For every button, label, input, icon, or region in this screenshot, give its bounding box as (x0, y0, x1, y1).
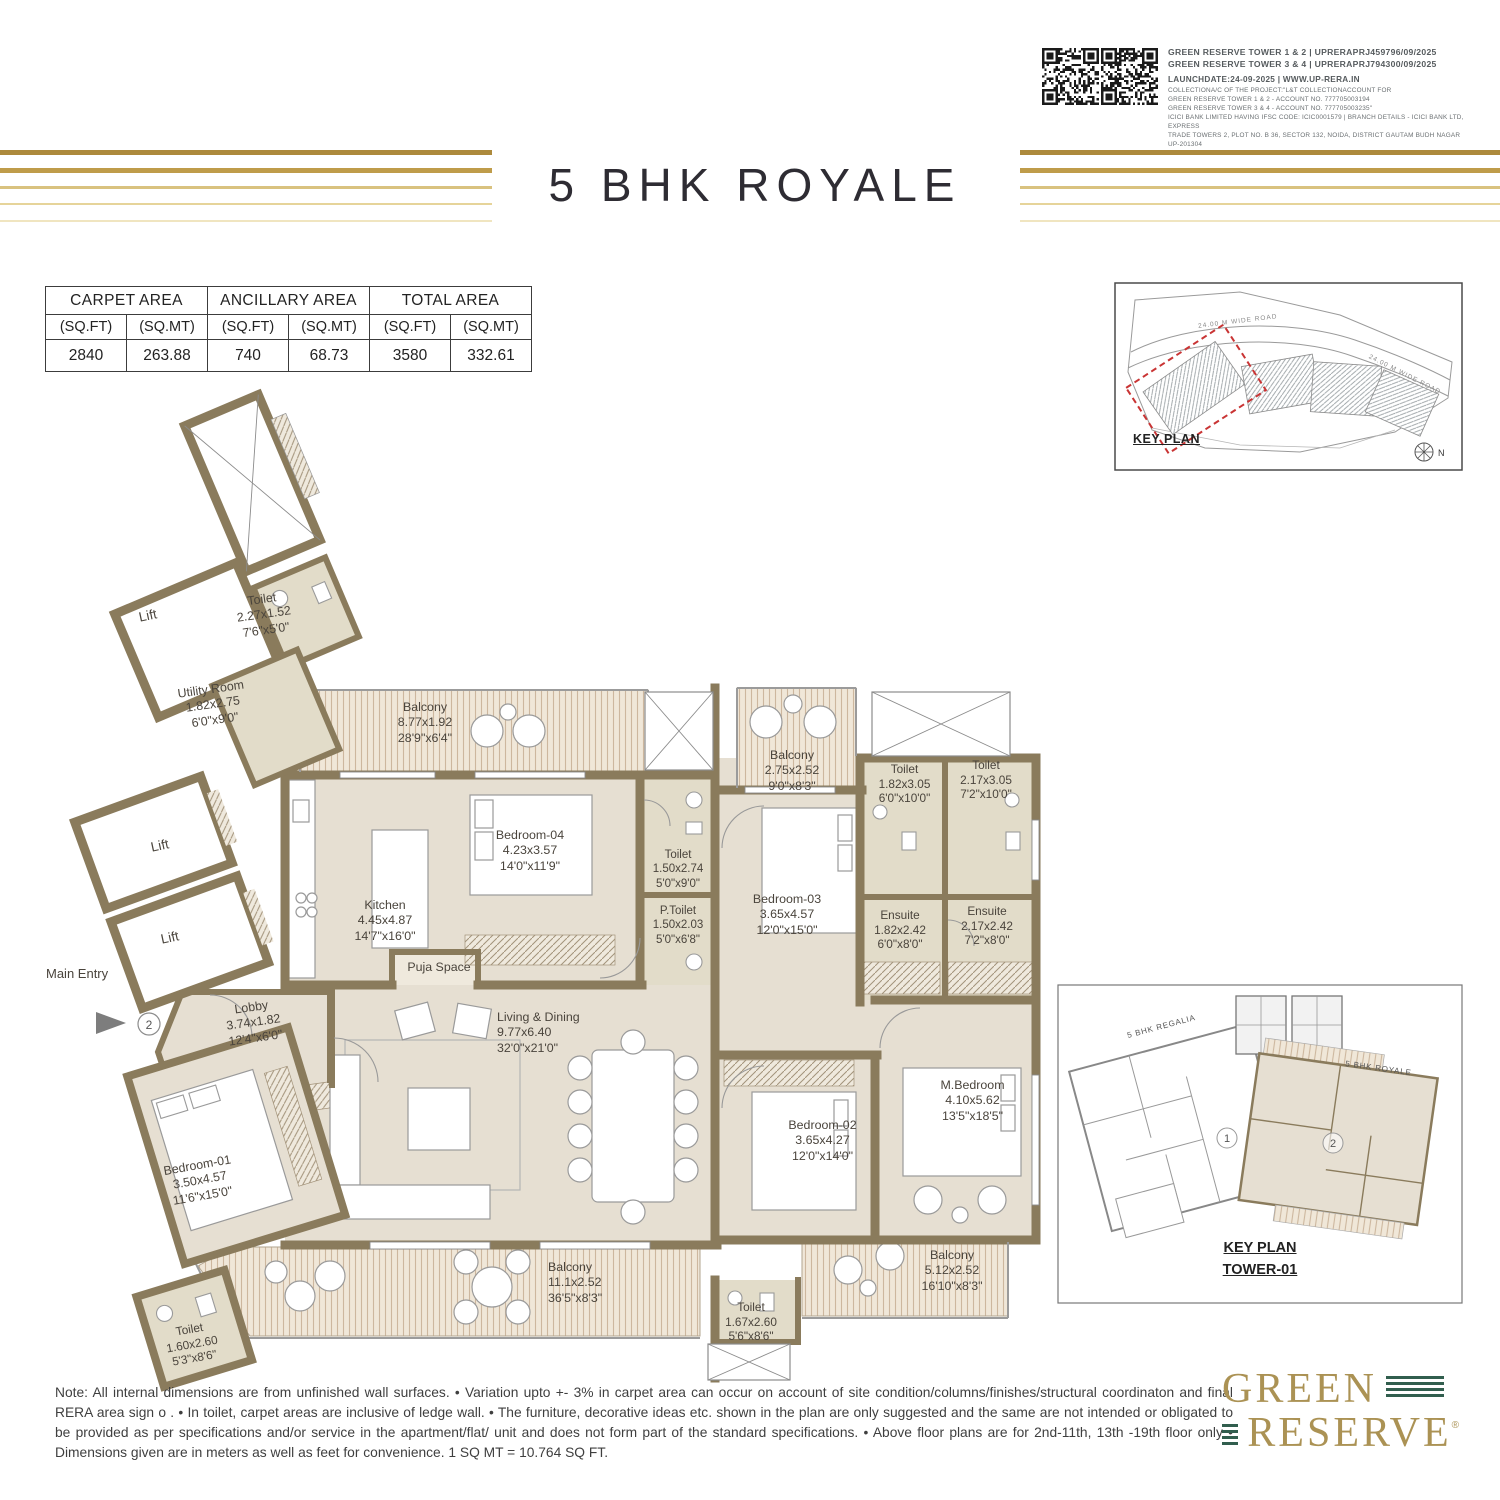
room-label-balcony-long: Balcony11.1x2.5236'5"x8'3" (548, 1260, 658, 1306)
room-label-balcony-top: Balcony8.77x1.9228'9"x6'4" (370, 700, 480, 746)
registered-mark: ® (1452, 1420, 1462, 1431)
area-group-header: TOTAL AREA (370, 287, 532, 315)
area-subheader: (SQ.FT) (208, 315, 289, 340)
key-plan-label: KEY PLAN (1133, 432, 1200, 446)
legal-line: TRADE TOWERS 2, PLOT NO. B 36, SECTOR 13… (1168, 132, 1468, 150)
room-label-balcony-br: Balcony5.12x2.5216'10"x8'3" (902, 1248, 1002, 1294)
room-label-kitchen: Kitchen4.45x4.8714'7"x16'0" (330, 898, 440, 944)
room-label-living-dining: Living & Dining9.77x6.4032'0"x21'0" (497, 1010, 627, 1056)
area-subheader: (SQ.MT) (289, 315, 370, 340)
tower-key-plan-title: KEY PLAN TOWER-01 (1160, 1238, 1360, 1282)
legal-line: ICICI BANK LIMITED HAVING IFSC CODE: ICI… (1168, 114, 1468, 132)
room-label-toilet-r1: Toilet1.82x3.056'0"x10'0" (862, 762, 947, 806)
page-title: 5 BHK ROYALE (490, 158, 1020, 212)
logo-word-reserve: RESERVE® (1247, 1412, 1462, 1454)
area-subheader: (SQ.FT) (370, 315, 451, 340)
area-value: 2840 (46, 340, 127, 372)
floorplan-brochure-page: 2 24.00 M WIDE ROAD 24.00 M WIDE ROAD N (0, 0, 1500, 1500)
rera-line: GREEN RESERVE TOWER 3 & 4 | UPRERAPRJ794… (1168, 59, 1468, 71)
room-label-toilet-b: Toilet1.67x2.605'6"x8'6" (705, 1300, 797, 1344)
logo-word-green: GREEN (1222, 1368, 1377, 1410)
logo-lines-icon (1222, 1424, 1238, 1445)
disclaimer-note: Note: All internal dimensions are from u… (55, 1383, 1233, 1464)
rera-line: GREEN RESERVE TOWER 1 & 2 | UPRERAPRJ459… (1168, 47, 1468, 59)
room-label-m-bedroom: M.Bedroom4.10x5.6213'5"x18'5" (905, 1078, 1040, 1124)
area-value: 68.73 (289, 340, 370, 372)
area-subheader: (SQ.FT) (46, 315, 127, 340)
unit-1-number: 1 (1224, 1133, 1230, 1145)
area-group-header: CARPET AREA (46, 287, 208, 315)
green-reserve-logo: GREEN RESERVE® (1222, 1368, 1462, 1454)
room-label-balcony-r: Balcony2.75x2.529'0"x8'3" (742, 748, 842, 794)
room-label-ensuite-1: Ensuite1.82x2.426'0"x8'0" (856, 908, 944, 952)
qr-code-1 (1042, 48, 1099, 105)
entry-unit-number: 2 (146, 1018, 153, 1032)
qr-code-2 (1101, 48, 1158, 105)
area-value: 263.88 (127, 340, 208, 372)
room-label-puja-space: Puja Space (394, 960, 484, 975)
main-floor-plan: 2 (58, 388, 1039, 1387)
svg-text:N: N (1438, 448, 1445, 458)
legal-line: GREEN RESERVE TOWER 1 & 2 - ACCOUNT NO. … (1168, 96, 1468, 105)
area-group-header: ANCILLARY AREA (208, 287, 370, 315)
area-value: 740 (208, 340, 289, 372)
legal-line: COLLECTIONA/C OF THE PROJECT:"L&T COLLEC… (1168, 87, 1468, 96)
rera-legal-text: GREEN RESERVE TOWER 1 & 2 | UPRERAPRJ459… (1168, 47, 1468, 150)
area-table: CARPET AREA ANCILLARY AREA TOTAL AREA (S… (45, 286, 532, 372)
legal-line: GREEN RESERVE TOWER 3 & 4 - ACCOUNT NO. … (1168, 105, 1468, 114)
room-label-p-toilet: P.Toilet1.50x2.035'0"x6'8" (636, 904, 720, 947)
room-label-bedroom-03: Bedroom-033.65x4.5712'0"x15'0" (712, 892, 862, 938)
gold-lines-left (0, 150, 492, 222)
main-entry-label: Main Entry (46, 966, 138, 982)
main-entry-arrow-icon (96, 1012, 126, 1034)
area-value: 3580 (370, 340, 451, 372)
area-value: 332.61 (451, 340, 532, 372)
launch-line: LAUNCHDATE:24-09-2025 | WWW.UP-RERA.IN (1168, 75, 1468, 84)
room-label-toilet-r2: Toilet2.17x3.057'2"x10'0" (942, 758, 1030, 802)
logo-lines-icon (1386, 1376, 1444, 1397)
room-label-bedroom-04: Bedroom-044.23x3.5714'0"x11'9" (455, 828, 605, 874)
area-subheader: (SQ.MT) (451, 315, 532, 340)
gold-lines-right (1020, 150, 1500, 222)
room-label-ensuite-2: Ensuite2.17x2.427'2"x8'0" (942, 904, 1032, 948)
room-label-toilet-c: Toilet1.50x2.745'0"x9'0" (638, 848, 718, 891)
unit-2-number: 2 (1330, 1138, 1336, 1150)
area-subheader: (SQ.MT) (127, 315, 208, 340)
room-label-bedroom-02: Bedroom-023.65x4.2712'0"x14'0" (755, 1118, 890, 1164)
